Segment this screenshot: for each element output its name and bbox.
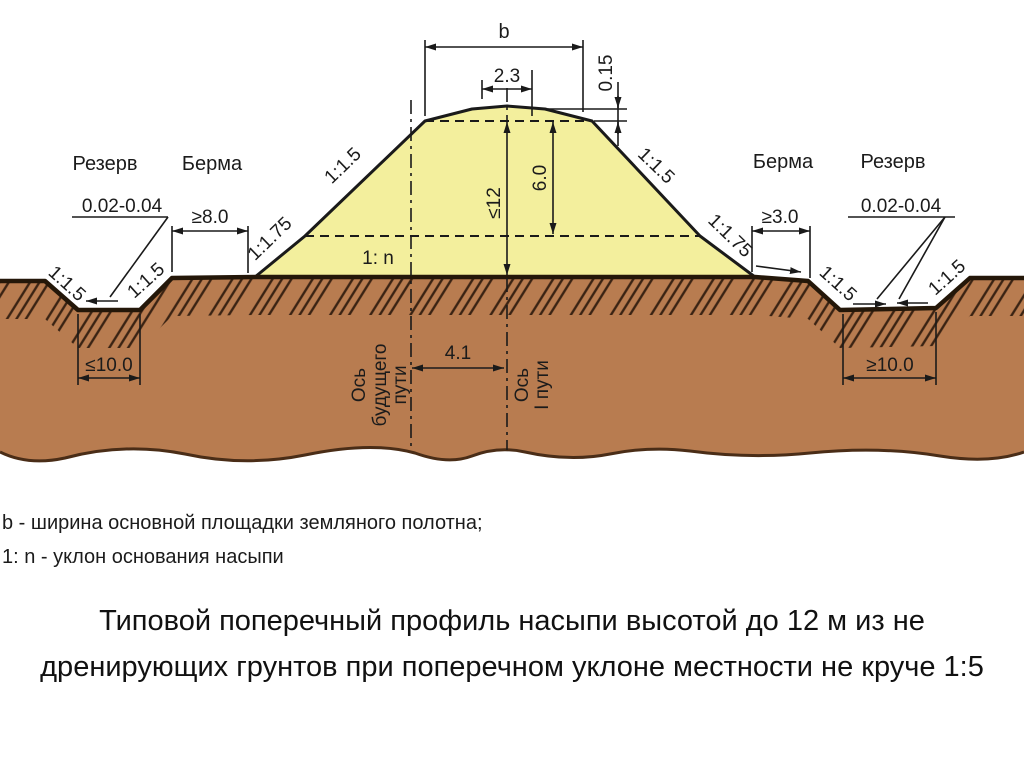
label-berm-right: Берма	[753, 151, 814, 173]
slope-left-upper: 1:1.5	[321, 144, 366, 188]
dim-berm-right-width: ≥3.0	[762, 207, 799, 228]
axis-track1-word2: I пути	[532, 360, 553, 410]
caption-text: Типовой поперечный профиль насыпи высото…	[12, 598, 1012, 690]
legend-line-b: b - ширина основной площадки земляного п…	[2, 506, 483, 540]
label-reserve-right: Резерв	[861, 151, 926, 173]
legend-line-n: 1: n - уклон основания насыпи	[2, 540, 483, 574]
dim-top-width: 2.3	[494, 66, 520, 87]
axis-track1-word1: Ось	[512, 368, 533, 402]
slide: Резерв Берма Берма Резерв b 2.3 0.15 ≤12…	[0, 0, 1024, 767]
label-base-slope: 1: n	[362, 248, 394, 269]
dim-reserve-right-bottom: ≥10.0	[866, 355, 913, 376]
dim-crest-width: b	[498, 21, 509, 43]
axis-future-word3: пути	[390, 365, 411, 404]
ground-bottom-edge	[0, 447, 1024, 460]
dim-height-max: ≤12	[484, 187, 505, 219]
dim-reserve-left-bottom: ≤10.0	[85, 355, 132, 376]
dim-camber: 0.15	[596, 55, 617, 92]
label-berm-left: Берма	[182, 153, 243, 175]
axis-future-word1: Ось	[349, 368, 370, 402]
dim-track-spacing: 4.1	[445, 343, 471, 364]
caption: Типовой поперечный профиль насыпи высото…	[0, 598, 1024, 690]
dim-berm-left-width: ≥8.0	[192, 207, 229, 228]
label-reserve-left: Резерв	[73, 153, 138, 175]
legend: b - ширина основной площадки земляного п…	[2, 506, 483, 574]
embankment-shape	[255, 106, 755, 277]
dim-reserve-left-grade: 0.02-0.04	[82, 196, 163, 217]
axis-future-word2: будущего	[370, 344, 391, 427]
dim-reserve-right-grade: 0.02-0.04	[861, 196, 942, 217]
dim-height-upper: 6.0	[530, 165, 551, 191]
embankment-profile-diagram: Резерв Берма Берма Резерв b 2.3 0.15 ≤12…	[0, 0, 1024, 590]
